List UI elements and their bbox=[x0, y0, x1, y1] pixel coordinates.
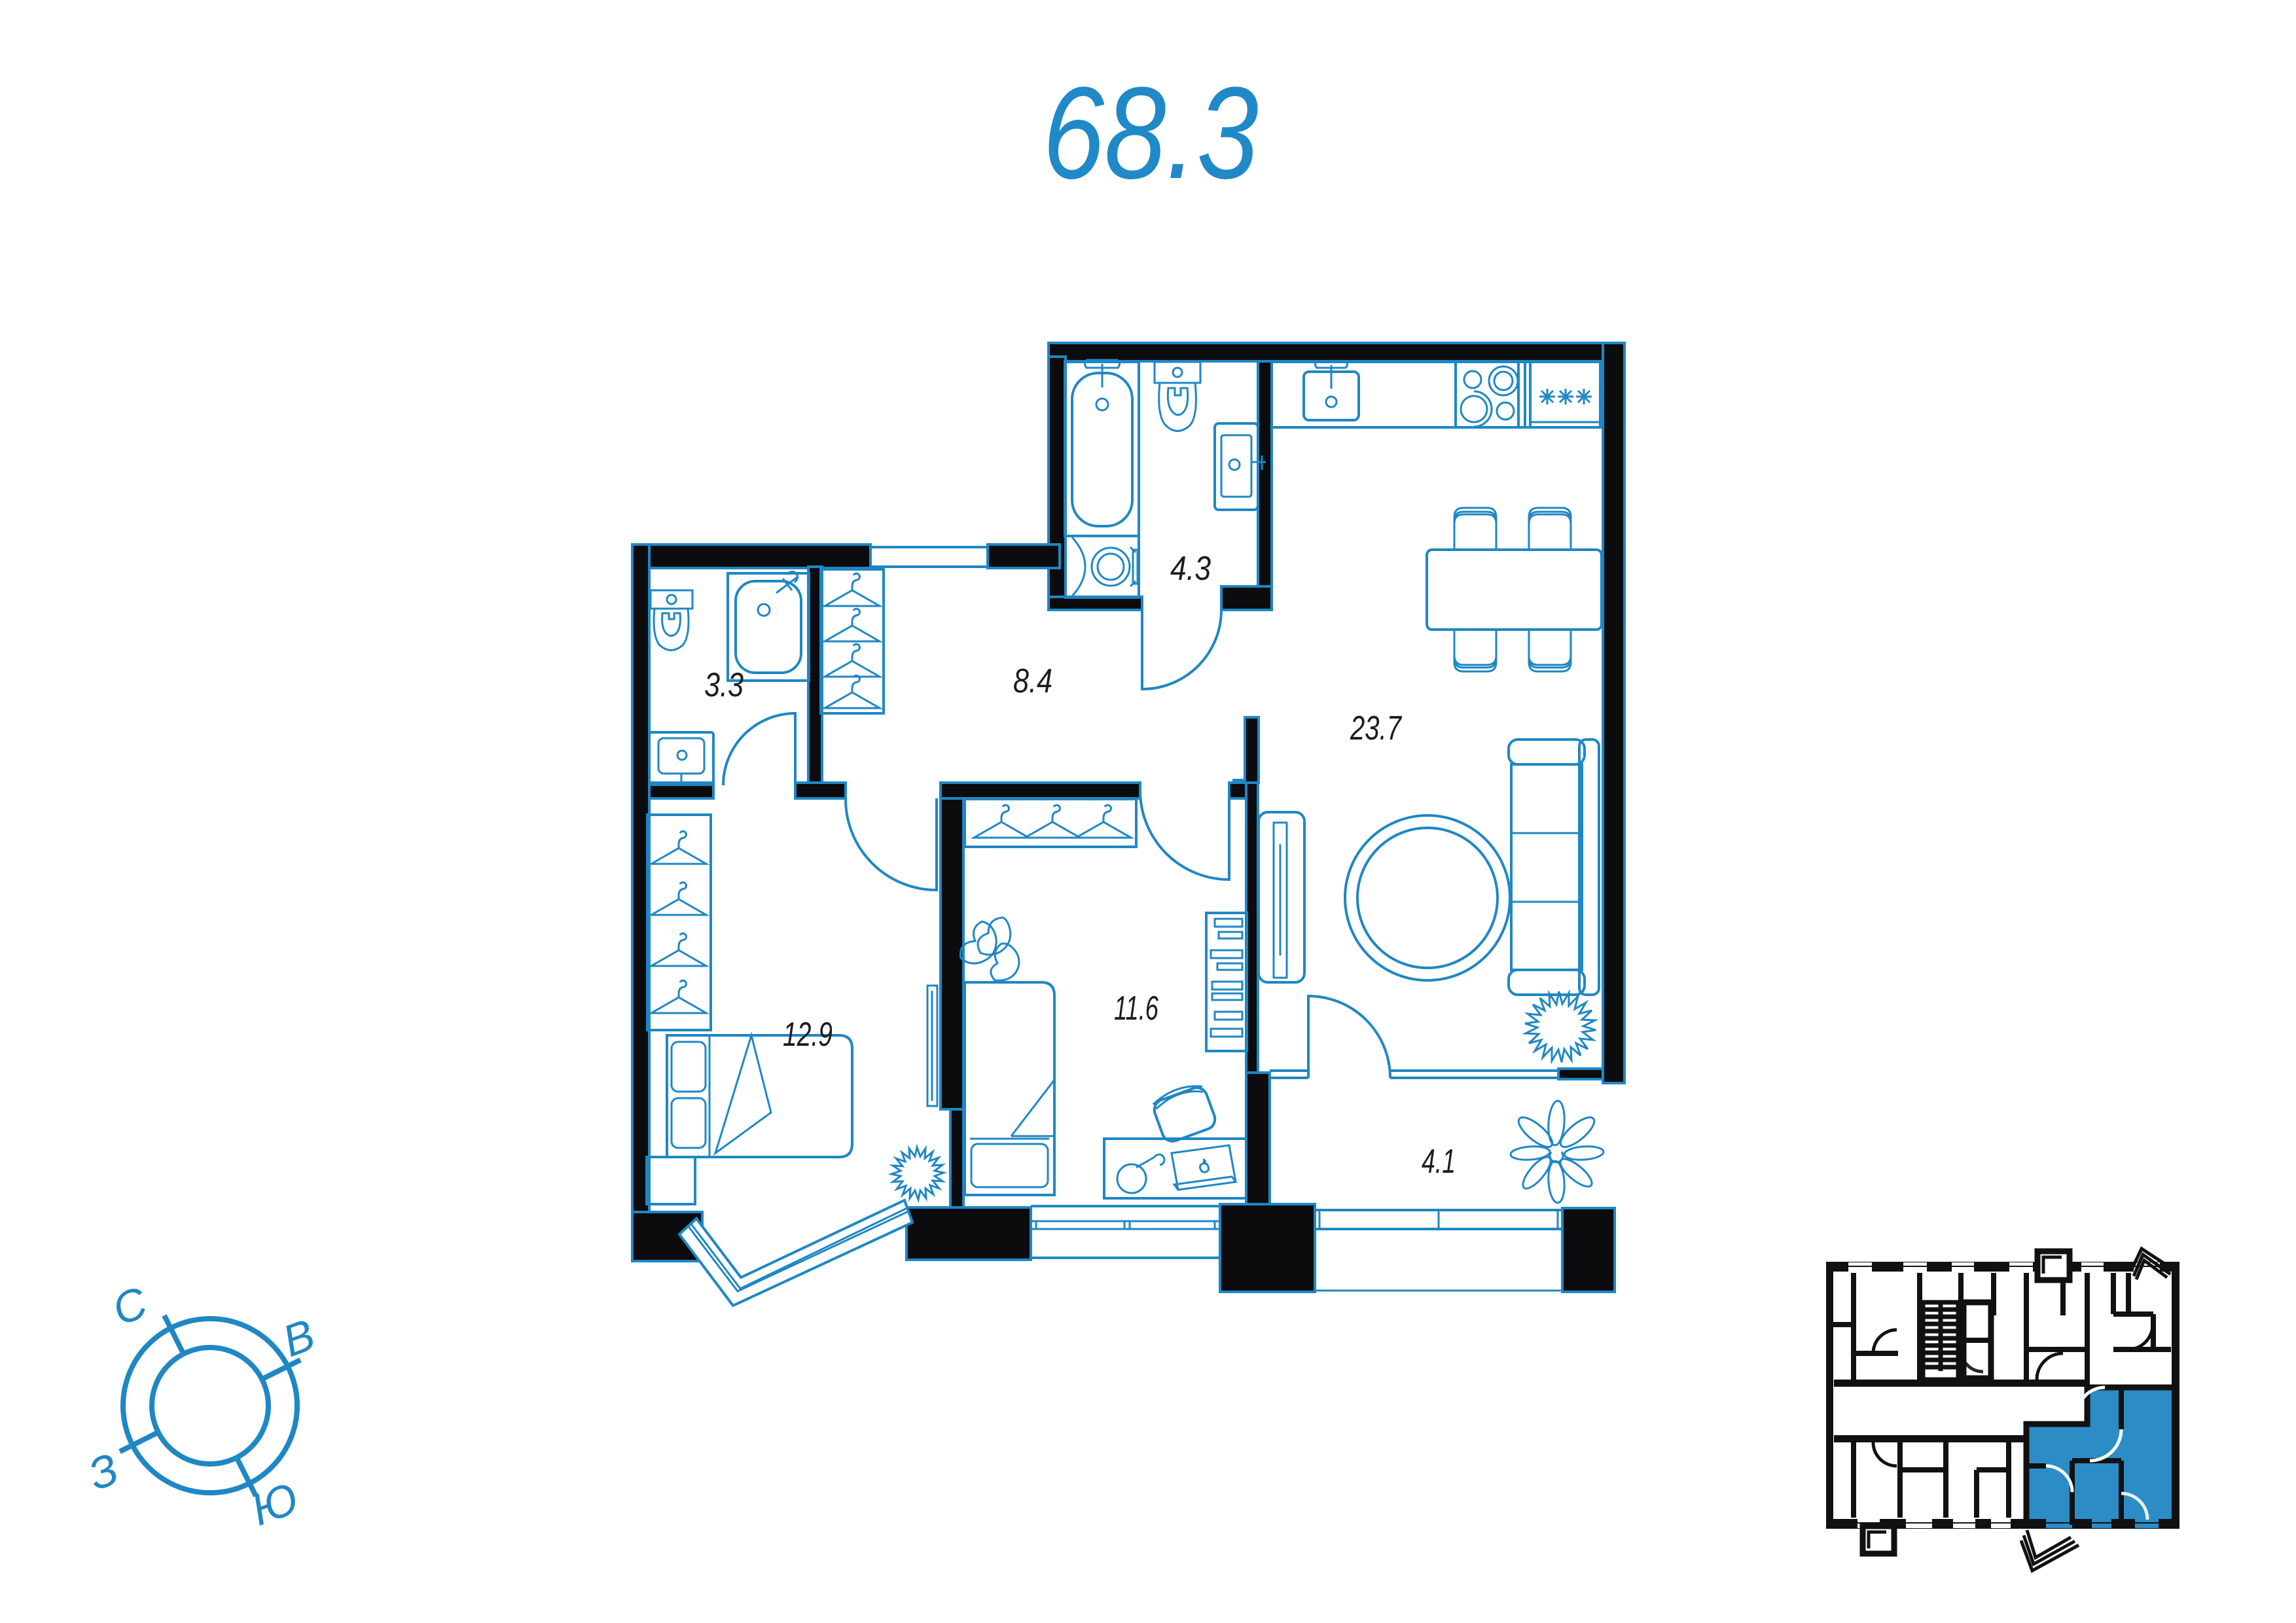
svg-text:23.7: 23.7 bbox=[1350, 709, 1402, 747]
svg-text:3.3: 3.3 bbox=[704, 666, 744, 704]
svg-text:8.4: 8.4 bbox=[1013, 662, 1052, 700]
svg-text:4.3: 4.3 bbox=[1170, 550, 1211, 588]
svg-text:68.3: 68.3 bbox=[1043, 60, 1259, 206]
svg-text:4.1: 4.1 bbox=[1422, 1143, 1456, 1181]
svg-text:11.6: 11.6 bbox=[1114, 990, 1158, 1027]
svg-text:12.9: 12.9 bbox=[783, 1016, 833, 1054]
